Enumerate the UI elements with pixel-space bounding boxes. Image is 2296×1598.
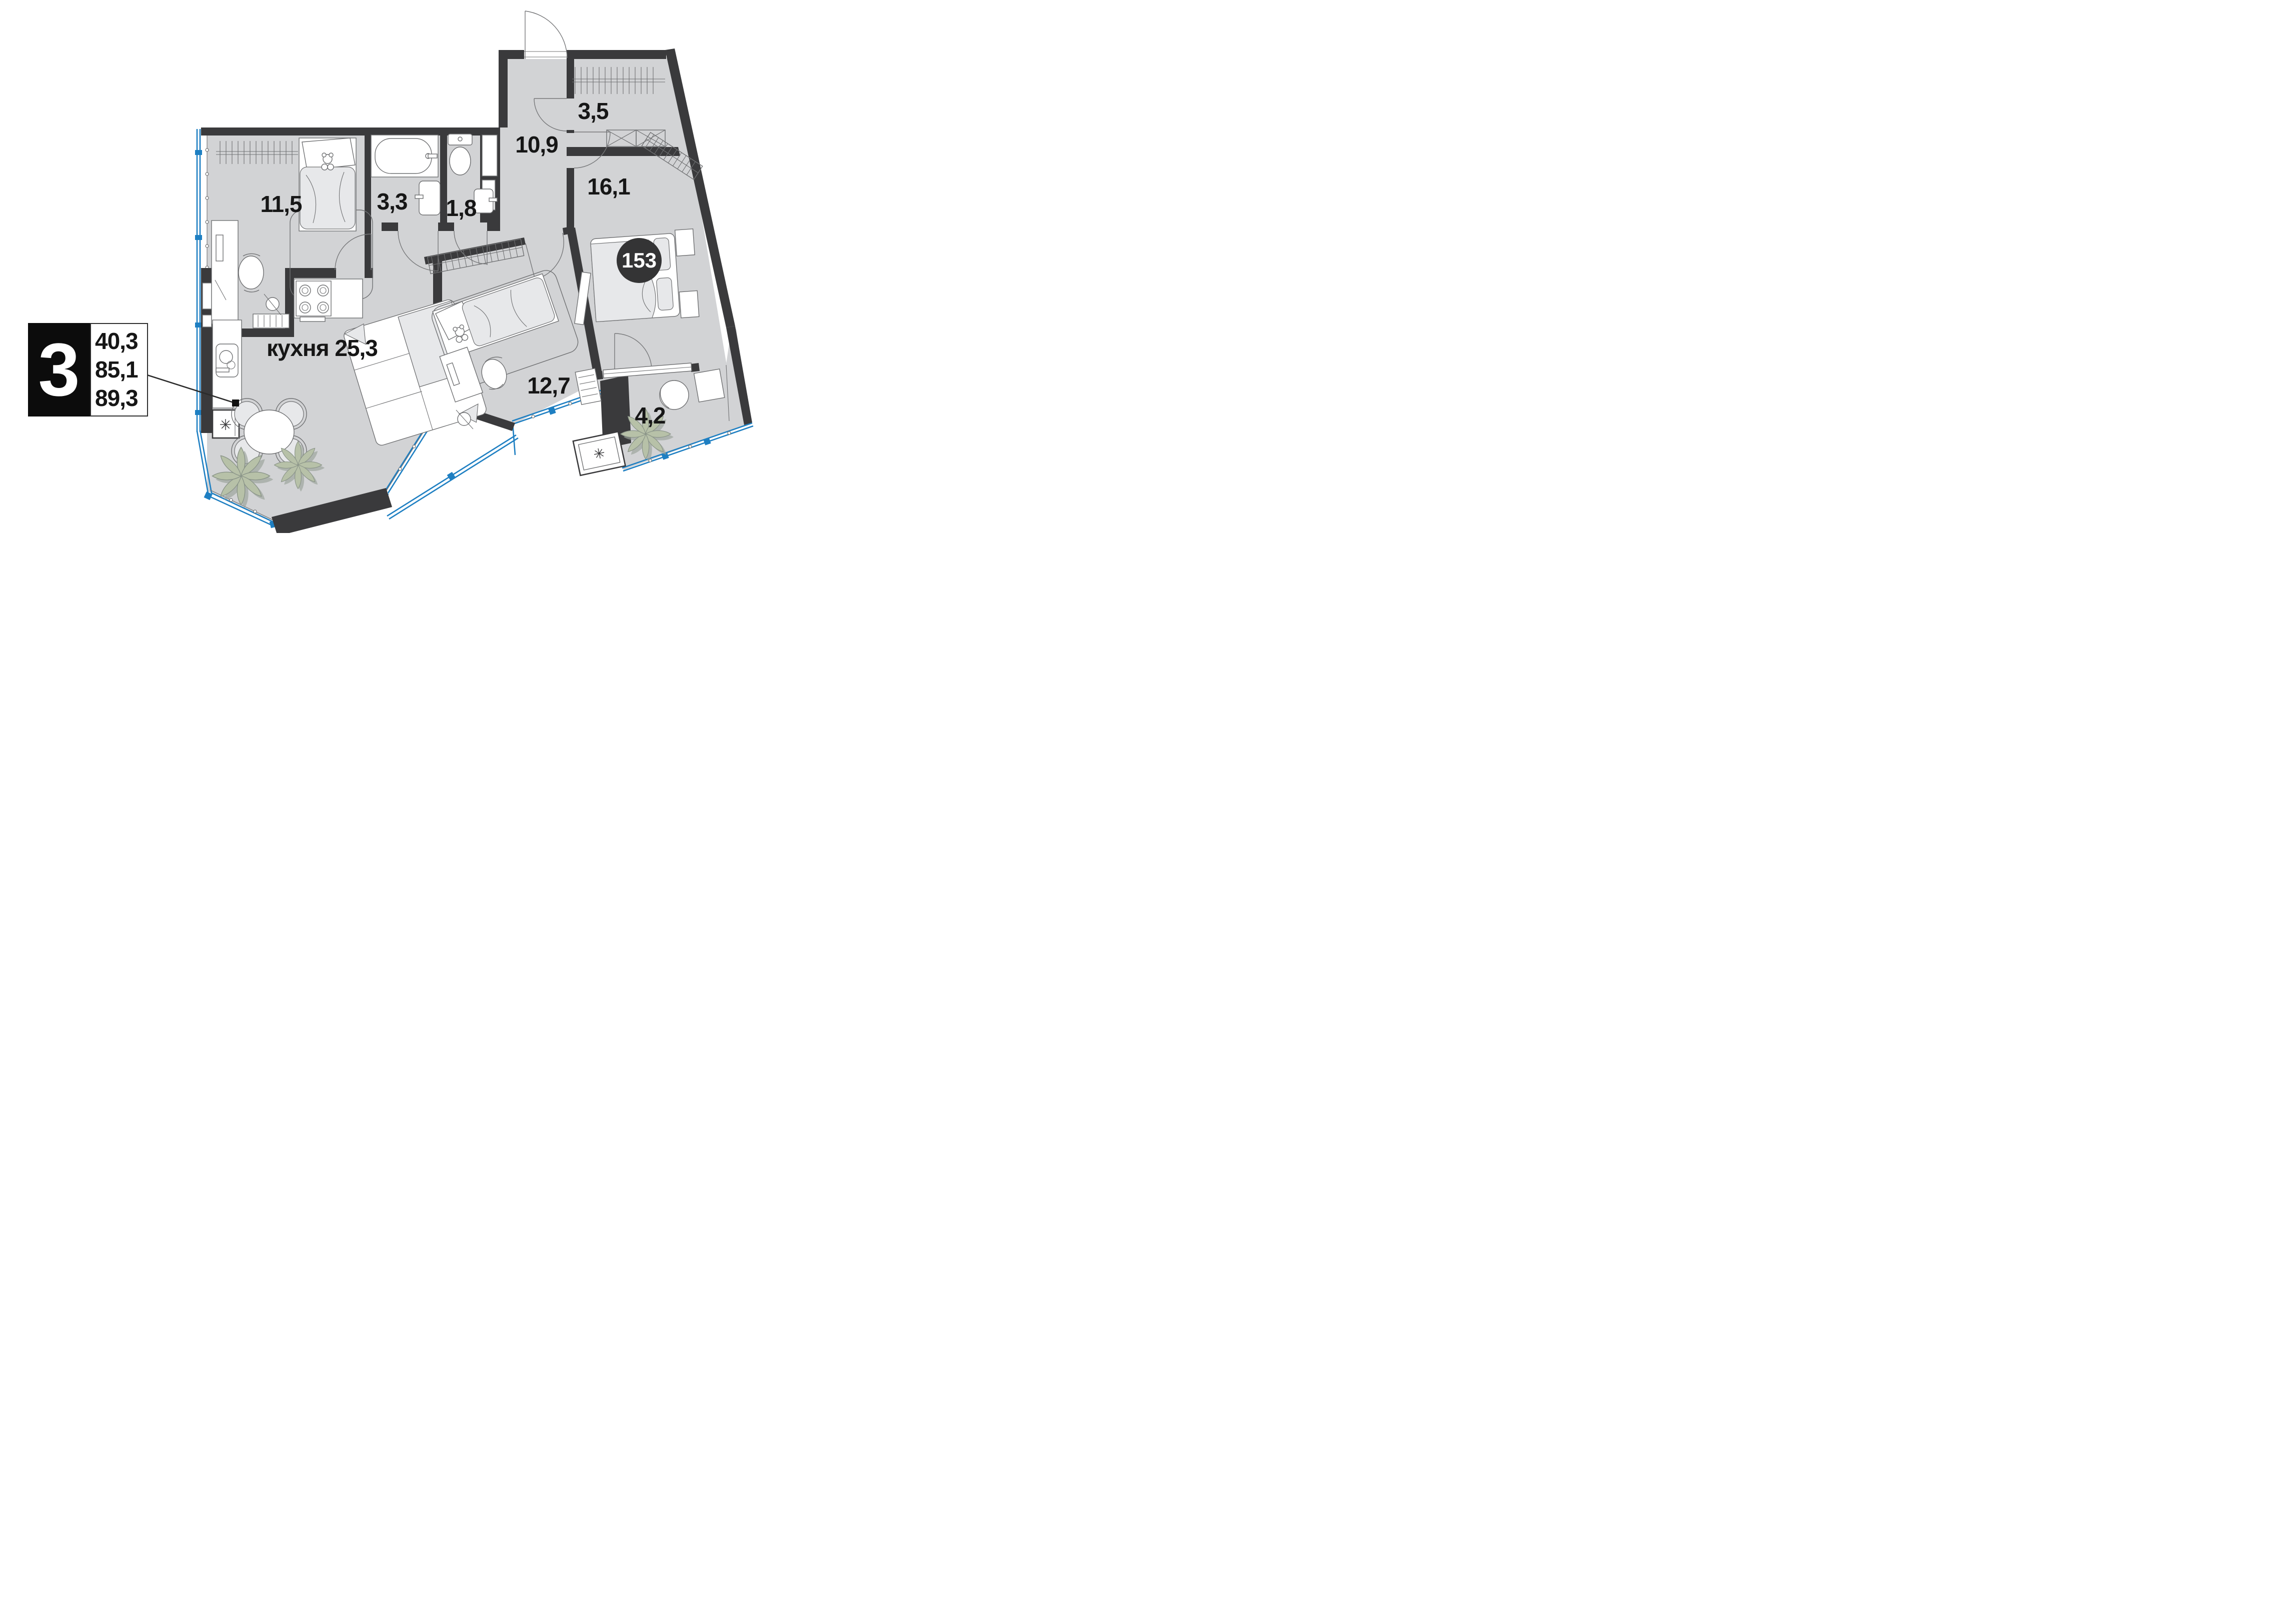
label-bedroom-2: 16,1 <box>587 173 630 200</box>
legend-room-count: 3 <box>28 323 90 416</box>
balcony-table <box>694 369 725 402</box>
floor-plan: ✳ <box>0 0 766 533</box>
stove-counter <box>294 279 363 321</box>
sink <box>415 181 440 215</box>
bathtub <box>371 135 438 177</box>
label-bedroom-3: 12,7 <box>527 372 570 399</box>
shelf <box>253 314 289 328</box>
entrance-door <box>524 11 567 59</box>
kitchen-area: 25,3 <box>335 335 378 361</box>
legend-total-area: 89,3 <box>95 384 147 412</box>
vent-symbol: ✳ <box>219 417 232 433</box>
ac-unit: ✳ <box>573 431 626 475</box>
label-bathroom: 3,3 <box>377 188 408 215</box>
legend-living-area: 40,3 <box>95 327 147 355</box>
label-hallway: 10,9 <box>515 131 558 158</box>
legend: 3 40,3 85,1 89,3 <box>28 323 148 416</box>
label-kitchen: кухня 25,3 <box>267 334 378 361</box>
toilet <box>448 134 472 175</box>
desk <box>212 220 238 324</box>
bed-single <box>299 138 356 231</box>
label-balcony: 4,2 <box>635 402 666 429</box>
kitchen-name: кухня <box>267 335 329 361</box>
sink-counter <box>213 320 242 408</box>
legend-areas: 40,3 85,1 89,3 <box>90 323 148 416</box>
label-closet: 3,5 <box>578 97 609 124</box>
legend-apartment-area: 85,1 <box>95 355 147 384</box>
label-bedroom-1: 11,5 <box>261 190 302 217</box>
apartment-number: 153 <box>622 248 657 272</box>
label-wc: 1,8 <box>446 194 477 221</box>
